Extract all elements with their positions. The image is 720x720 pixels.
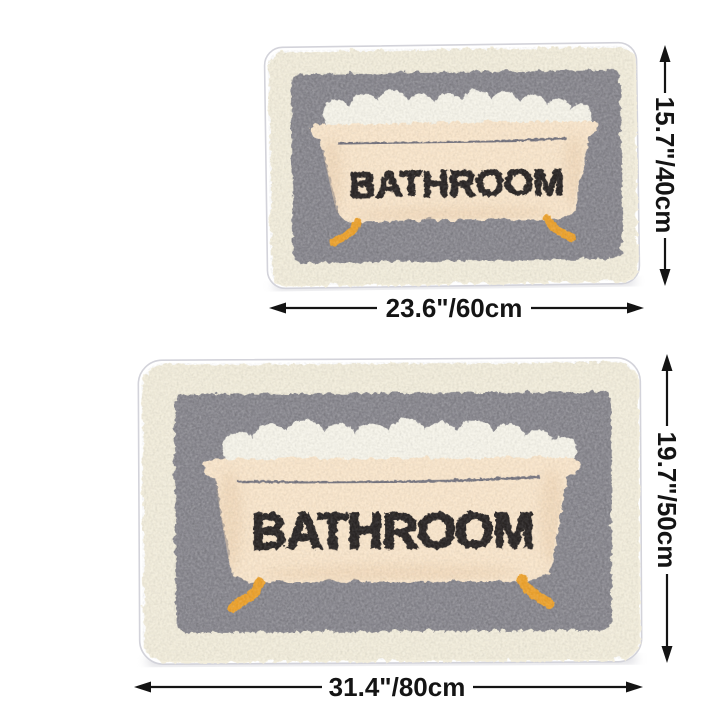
svg-text:23.6"/60cm: 23.6"/60cm	[386, 293, 523, 323]
svg-text:15.7"/40cm: 15.7"/40cm	[650, 97, 680, 234]
svg-text:19.7"/50cm: 19.7"/50cm	[652, 432, 682, 569]
svg-text:31.4"/80cm: 31.4"/80cm	[329, 672, 466, 702]
